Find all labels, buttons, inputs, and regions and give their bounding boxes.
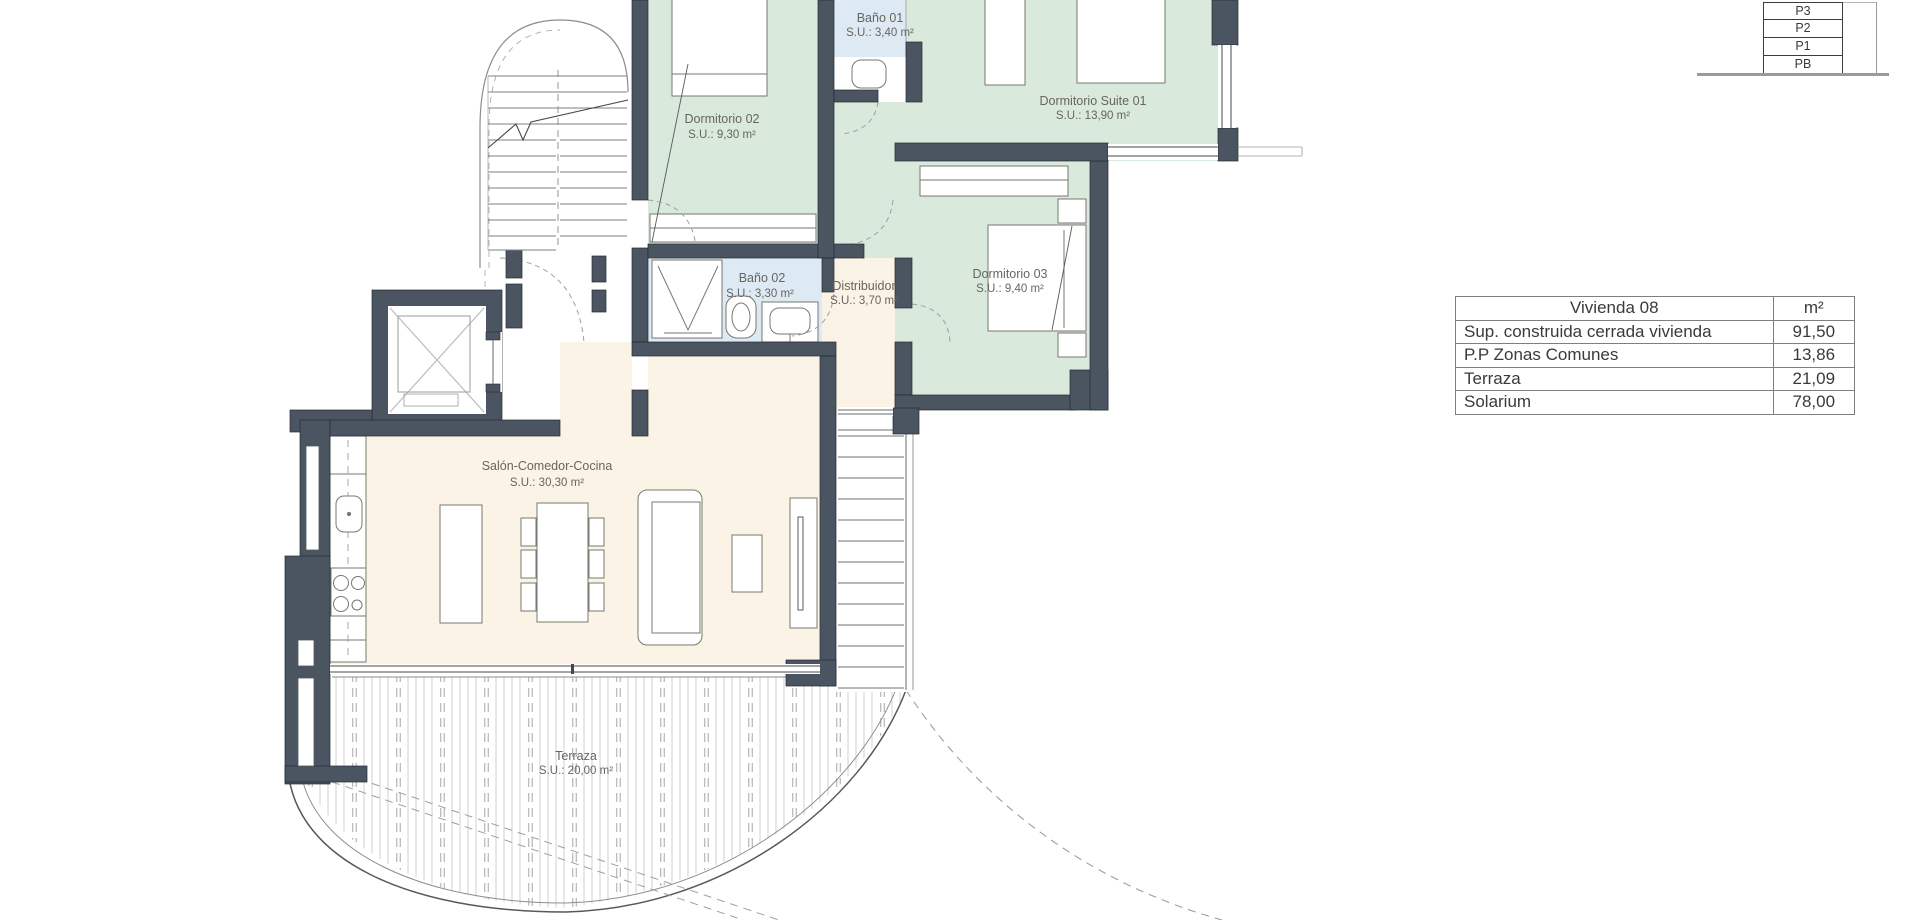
landing-door-jamb (506, 284, 522, 328)
coffee-table-icon (732, 535, 762, 592)
kitchen-island-icon (440, 505, 482, 623)
elevator-door (486, 332, 502, 392)
table-header-row: Vivienda 08 m² (1456, 297, 1855, 321)
floorplan-sheet: Baño 01 S.U.: 3,40 m² Dormitorio Suite 0… (0, 0, 1920, 920)
stair-arch-outline (480, 20, 628, 268)
sofa-icon (638, 490, 702, 645)
row-label: P.P Zonas Comunes (1456, 344, 1774, 368)
salon-floor-upper (648, 356, 820, 436)
suite-east-window (1218, 45, 1236, 128)
terraza-label: Terraza (555, 749, 597, 763)
level-pb: PB (1763, 56, 1843, 74)
bano02-toilet-icon (726, 296, 756, 338)
salon-west-window (306, 446, 319, 550)
stair-arch-dashed (489, 30, 560, 268)
suite-corridor-floor (834, 161, 895, 258)
terrace-hatch (305, 677, 906, 908)
indicator-top-line (1843, 2, 1877, 3)
dining-table-icon (521, 503, 604, 622)
terrace-west-window-1 (298, 640, 314, 666)
elevator-icon (388, 306, 502, 414)
salon-label: Salón-Comedor-Cocina (482, 459, 613, 473)
bano01-toilet-icon (852, 60, 886, 88)
suite-wardrobe-icon (985, 0, 1025, 85)
row-value: 91,50 (1773, 320, 1854, 344)
distribuidor-label: Distribuidor (832, 279, 895, 293)
floor-plan: Baño 01 S.U.: 3,40 m² Dormitorio Suite 0… (0, 0, 1920, 920)
salon-area: S.U.: 30,30 m² (510, 477, 584, 489)
dorm03-area: S.U.: 9,40 m² (976, 283, 1044, 295)
row-value: 13,86 (1773, 344, 1854, 368)
ground-line (1697, 73, 1889, 76)
interior-staircase (480, 20, 628, 288)
table-row: Sup. construida cerrada vivienda 91,50 (1456, 320, 1855, 344)
dorm02-bed-icon (672, 0, 767, 96)
row-value: 78,00 (1773, 391, 1854, 415)
level-p3: P3 (1763, 2, 1843, 20)
row-label: Solarium (1456, 391, 1774, 415)
terrace-west-window-2 (298, 678, 314, 766)
table-row: Terraza 21,09 (1456, 367, 1855, 391)
bano01-label: Baño 01 (857, 11, 904, 25)
area-summary-table: Vivienda 08 m² Sup. construida cerrada v… (1455, 296, 1855, 415)
hall-floor (560, 342, 632, 436)
tv-unit-icon (790, 498, 817, 628)
suite-bed-icon (1077, 0, 1165, 83)
bano01-area: S.U.: 3,40 m² (846, 27, 914, 39)
kitchen-sink-icon (336, 496, 362, 532)
level-p1: P1 (1763, 38, 1843, 56)
salon-glass-wall (330, 664, 820, 674)
suite01-label: Dormitorio Suite 01 (1040, 94, 1147, 108)
row-label: Terraza (1456, 367, 1774, 391)
level-p2: P2 (1763, 20, 1843, 38)
dorm02-area: S.U.: 9,30 m² (688, 129, 756, 141)
distribuidor-area: S.U.: 3,70 m² (830, 295, 898, 307)
exterior-sill-lines (1238, 147, 1302, 156)
suite01-area: S.U.: 13,90 m² (1056, 110, 1130, 122)
table-unit-header: m² (1773, 297, 1854, 321)
terraza-area: S.U.: 20,00 m² (539, 765, 613, 777)
dorm02-wardrobe-icon (650, 214, 816, 242)
hall-door-jamb (592, 290, 606, 312)
terrace (288, 677, 1222, 920)
hall-door-jamb (592, 256, 606, 282)
row-label: Sup. construida cerrada vivienda (1456, 320, 1774, 344)
passage-stair-door (838, 407, 893, 416)
exterior-staircase (836, 415, 916, 692)
dorm02-label: Dormitorio 02 (684, 112, 759, 126)
boundary-dashed-curve (906, 690, 1222, 920)
bano02-sink-icon (762, 302, 818, 342)
dorm03-wardrobe-icon (920, 166, 1068, 196)
suite-south-window (1108, 144, 1218, 160)
landing-door-jamb (506, 250, 522, 278)
bano02-label: Baño 02 (739, 271, 786, 285)
table-row: P.P Zonas Comunes 13,86 (1456, 344, 1855, 368)
indicator-side-line (1876, 2, 1877, 74)
shower-icon (652, 260, 722, 338)
floor-level-indicator: P3 P2 P1 PB (1763, 2, 1843, 74)
kitchen-counter-icon (330, 436, 366, 662)
cooktop-icon (331, 568, 366, 616)
table-row: Solarium 78,00 (1456, 391, 1855, 415)
passage-floor (836, 342, 895, 415)
dorm03-label: Dormitorio 03 (972, 267, 1047, 281)
bano02-area: S.U.: 3,30 m² (726, 288, 794, 300)
table-title: Vivienda 08 (1456, 297, 1774, 321)
row-value: 21,09 (1773, 367, 1854, 391)
